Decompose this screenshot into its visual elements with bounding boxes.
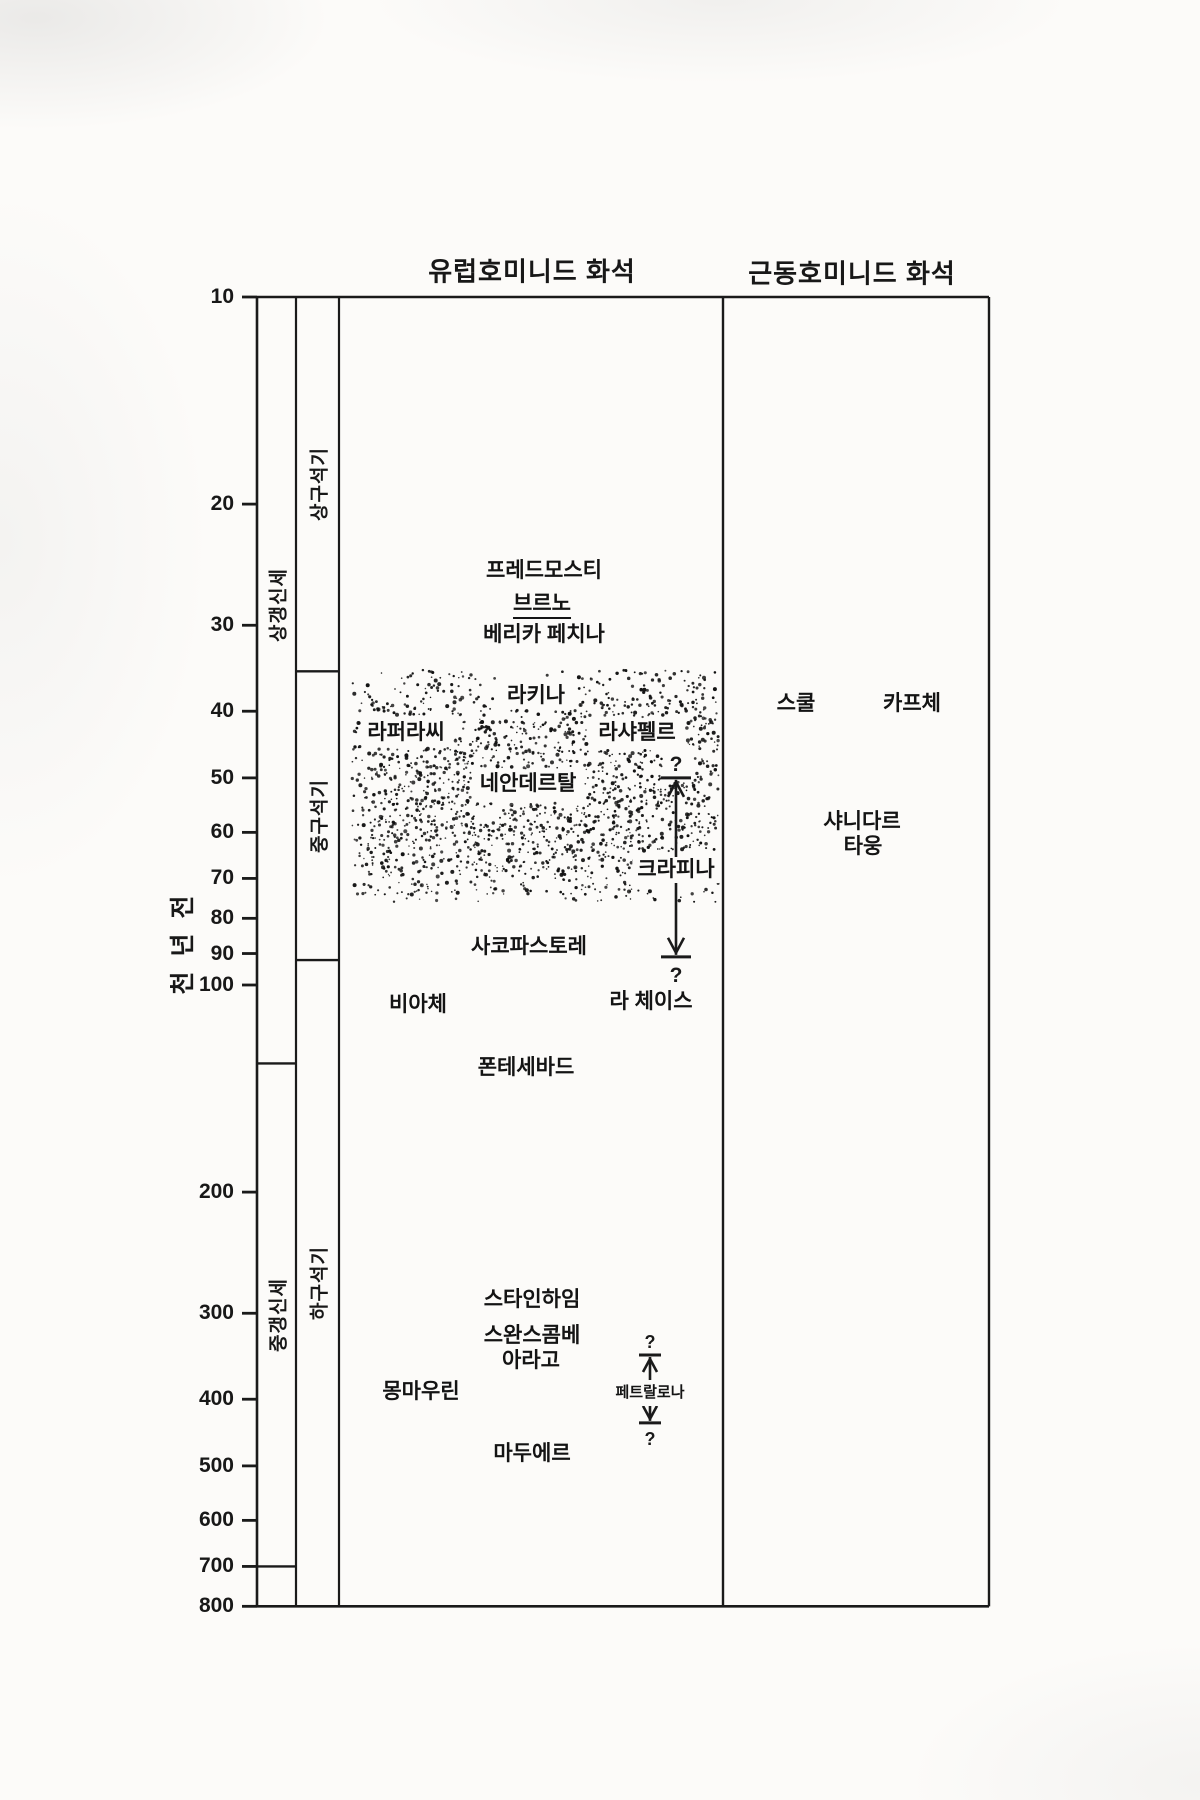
stipple-dot bbox=[438, 788, 442, 792]
stipple-dot bbox=[483, 850, 486, 853]
stipple-dot bbox=[518, 848, 521, 851]
stipple-dot bbox=[488, 829, 491, 832]
stipple-dot bbox=[699, 674, 701, 676]
stipple-dot bbox=[476, 737, 479, 740]
stipple-dot bbox=[514, 744, 515, 745]
stipple-dot bbox=[620, 857, 622, 859]
stipple-dot bbox=[431, 676, 433, 678]
stipple-dot bbox=[653, 787, 655, 789]
stipple-dot bbox=[692, 743, 694, 745]
europe-panel-title: 유럽호미니드 화석 bbox=[428, 252, 636, 289]
stipple-dot bbox=[413, 842, 415, 844]
stipple-dot bbox=[469, 796, 472, 799]
stipple-dot bbox=[502, 870, 504, 872]
stipple-dot bbox=[488, 834, 491, 837]
stipple-dot bbox=[611, 697, 614, 700]
stipple-dot bbox=[704, 835, 706, 837]
stipple-dot bbox=[592, 776, 595, 779]
stipple-dot bbox=[514, 817, 517, 820]
stipple-dot bbox=[456, 882, 459, 885]
stipple-dot bbox=[612, 821, 616, 825]
stipple-dot bbox=[448, 802, 450, 804]
stipple-dot bbox=[701, 799, 704, 802]
stipple-dot bbox=[585, 815, 588, 818]
stipple-dot bbox=[580, 838, 584, 842]
stipple-dot bbox=[480, 824, 483, 827]
stipple-dot bbox=[658, 775, 660, 777]
stipple-dot bbox=[594, 815, 597, 818]
stipple-dot bbox=[665, 807, 667, 809]
stipple-dot bbox=[576, 808, 578, 810]
stipple-dot bbox=[380, 834, 383, 837]
stipple-dot bbox=[450, 690, 454, 694]
stipple-dot bbox=[486, 825, 489, 828]
stipple-dot bbox=[714, 827, 717, 830]
stipple-dot bbox=[624, 836, 627, 839]
stipple-dot bbox=[379, 843, 382, 846]
stipple-dot bbox=[591, 849, 594, 852]
stipple-dot bbox=[520, 831, 523, 834]
stipple-dot bbox=[454, 889, 456, 891]
stipple-dot bbox=[398, 882, 399, 883]
stipple-dot bbox=[383, 755, 386, 758]
stipple-dot bbox=[645, 803, 647, 805]
stipple-dot bbox=[691, 892, 694, 895]
stipple-dot bbox=[468, 761, 470, 763]
stipple-dot bbox=[638, 833, 641, 836]
stipple-dot bbox=[435, 899, 438, 902]
stipple-dot bbox=[417, 806, 419, 808]
stipple-dot bbox=[529, 805, 532, 808]
stipple-dot bbox=[400, 691, 402, 693]
stipple-dot bbox=[540, 753, 541, 754]
stipple-dot bbox=[644, 749, 647, 752]
stipple-dot bbox=[598, 859, 599, 860]
stipple-dot bbox=[608, 697, 610, 699]
stipple-dot bbox=[699, 820, 701, 822]
stipple-dot bbox=[638, 704, 641, 707]
stipple-dot bbox=[473, 832, 475, 834]
stipple-dot bbox=[384, 893, 386, 895]
stipple-dot bbox=[657, 801, 659, 803]
stipple-dot bbox=[352, 692, 356, 696]
stipple-dot bbox=[456, 698, 457, 699]
stipple-dot bbox=[531, 762, 534, 765]
stipple-dot bbox=[694, 824, 696, 826]
stipple-dot bbox=[640, 672, 642, 674]
stipple-dot bbox=[713, 823, 716, 826]
stipple-dot bbox=[669, 784, 672, 787]
stipple-dot bbox=[477, 852, 480, 855]
stipple-dot bbox=[562, 827, 564, 829]
stipple-dot bbox=[374, 837, 376, 839]
stipple-dot bbox=[680, 896, 682, 898]
stipple-dot bbox=[412, 878, 415, 881]
stipple-dot bbox=[698, 813, 700, 815]
stipple-dot bbox=[415, 826, 418, 829]
stipple-dot bbox=[605, 844, 608, 847]
stipple-dot bbox=[587, 796, 590, 799]
stipple-dot bbox=[406, 704, 409, 707]
stipple-dot bbox=[427, 886, 429, 888]
stipple-dot bbox=[568, 732, 572, 736]
y-axis-tick-label: 600 bbox=[150, 1508, 234, 1532]
y-axis-tick-label: 300 bbox=[150, 1301, 234, 1325]
stipple-dot bbox=[437, 800, 441, 804]
stipple-dot bbox=[641, 840, 644, 843]
stipple-dot bbox=[352, 825, 354, 827]
stipple-dot bbox=[695, 699, 697, 701]
stipple-dot bbox=[523, 834, 525, 836]
stipple-dot bbox=[434, 679, 438, 683]
stipple-dot bbox=[706, 765, 710, 769]
stipple-dot bbox=[557, 725, 560, 728]
stipple-dot bbox=[650, 775, 653, 778]
stipple-dot bbox=[678, 829, 681, 832]
stipple-dot bbox=[427, 815, 430, 818]
stipple-dot bbox=[556, 767, 558, 769]
stipple-dot bbox=[629, 884, 631, 886]
stipple-dot bbox=[381, 865, 385, 869]
stipple-dot bbox=[384, 769, 387, 772]
stipple-dot bbox=[420, 799, 424, 803]
stipple-dot bbox=[462, 759, 465, 762]
stipple-dot bbox=[457, 751, 459, 753]
stipple-dot bbox=[622, 858, 626, 862]
stipple-dot bbox=[491, 748, 493, 750]
stipple-dot bbox=[638, 847, 640, 849]
stipple-dot bbox=[387, 709, 390, 712]
stipple-dot bbox=[598, 765, 600, 767]
stipple-dot bbox=[433, 819, 436, 822]
stipple-dot bbox=[541, 826, 545, 830]
stipple-dot bbox=[465, 866, 467, 868]
stipple-dot bbox=[578, 687, 581, 690]
stipple-dot bbox=[587, 750, 589, 752]
stipple-dot bbox=[397, 838, 401, 842]
stipple-dot bbox=[401, 852, 405, 856]
stipple-dot bbox=[520, 745, 523, 748]
stipple-dot bbox=[353, 794, 356, 797]
stipple-dot bbox=[606, 704, 609, 707]
stipple-dot bbox=[689, 744, 690, 745]
stipple-dot bbox=[519, 865, 522, 868]
stipple-dot bbox=[570, 828, 573, 831]
stipple-dot bbox=[571, 868, 573, 870]
stipple-dot bbox=[636, 698, 639, 701]
stipple-dot bbox=[602, 853, 604, 855]
stipple-dot bbox=[366, 847, 369, 850]
stipple-dot bbox=[616, 846, 619, 849]
stipple-dot bbox=[427, 820, 430, 823]
y-axis-tick-label: 10 bbox=[150, 285, 234, 309]
stipple-dot bbox=[581, 889, 583, 891]
stipple-dot bbox=[588, 690, 590, 692]
stipple-dot bbox=[646, 821, 648, 823]
stipple-dot bbox=[382, 852, 385, 855]
stipple-dot bbox=[545, 736, 548, 739]
stipple-dot bbox=[521, 721, 524, 724]
stipple-dot bbox=[690, 825, 692, 827]
stipple-dot bbox=[433, 748, 436, 751]
stipple-dot bbox=[588, 714, 591, 717]
stipple-dot bbox=[680, 847, 684, 851]
stipple-dot bbox=[628, 828, 630, 830]
stipple-dot bbox=[384, 793, 387, 796]
y-axis-tick-label: 500 bbox=[150, 1454, 234, 1478]
stipple-dot bbox=[619, 789, 623, 793]
stipple-dot bbox=[707, 827, 709, 829]
stipple-dot bbox=[522, 843, 525, 846]
stipple-dot bbox=[419, 810, 421, 812]
stipple-dot bbox=[512, 721, 514, 723]
stipple-dot bbox=[428, 708, 430, 710]
stipple-dot bbox=[359, 852, 361, 854]
stipple-dot bbox=[558, 834, 562, 838]
stipple-dot bbox=[651, 840, 654, 843]
stipple-dot bbox=[420, 755, 423, 758]
stipple-dot bbox=[539, 831, 541, 833]
stipple-dot bbox=[454, 834, 457, 837]
stipple-dot bbox=[580, 749, 582, 751]
stipple-dot bbox=[687, 813, 691, 817]
stipple-dot bbox=[611, 856, 614, 859]
stipple-dot bbox=[394, 775, 397, 778]
stipple-dot bbox=[694, 779, 697, 782]
stipple-dot bbox=[687, 702, 689, 704]
stipple-dot bbox=[556, 837, 558, 839]
stipple-dot bbox=[424, 797, 427, 800]
stipple-dot bbox=[371, 704, 374, 707]
stipple-dot bbox=[485, 729, 488, 732]
stipple-dot bbox=[669, 703, 671, 705]
stipple-dot bbox=[712, 816, 715, 819]
stipple-dot bbox=[364, 787, 367, 790]
stipple-dot bbox=[417, 889, 419, 891]
column-label: 상갱신세 bbox=[263, 568, 290, 642]
stipple-dot bbox=[496, 870, 498, 872]
stipple-dot bbox=[522, 733, 524, 735]
stipple-dot bbox=[600, 811, 602, 813]
stipple-dot bbox=[598, 770, 600, 772]
stipple-dot bbox=[708, 782, 712, 786]
stipple-dot bbox=[454, 774, 456, 776]
stipple-dot bbox=[396, 803, 399, 806]
stipple-dot bbox=[554, 747, 556, 749]
stipple-dot bbox=[688, 685, 690, 687]
stipple-dot bbox=[467, 855, 469, 857]
column-label: 상구석기 bbox=[304, 447, 331, 521]
stipple-dot bbox=[437, 682, 441, 686]
stipple-dot bbox=[436, 844, 438, 846]
fossil-site-label: 타웅 bbox=[844, 834, 883, 860]
near-east-panel-title: 근동호미니드 화석 bbox=[748, 254, 956, 291]
stipple-dot bbox=[602, 684, 604, 686]
stipple-dot bbox=[606, 773, 608, 775]
stipple-dot bbox=[646, 800, 648, 802]
stipple-dot bbox=[467, 838, 469, 840]
stipple-dot bbox=[382, 877, 384, 879]
stipple-dot bbox=[679, 819, 683, 823]
stipple-dot bbox=[631, 751, 635, 755]
stipple-dot bbox=[715, 764, 718, 767]
stipple-dot bbox=[357, 721, 361, 725]
column-label: 중구석기 bbox=[304, 779, 331, 853]
stipple-dot bbox=[587, 805, 589, 807]
stipple-dot bbox=[686, 816, 689, 819]
stipple-dot bbox=[584, 824, 587, 827]
stipple-dot bbox=[412, 841, 414, 843]
stipple-dot bbox=[701, 697, 704, 700]
stipple-dot bbox=[373, 825, 375, 827]
stipple-dot bbox=[712, 696, 715, 699]
stipple-dot bbox=[414, 819, 417, 822]
stipple-dot bbox=[522, 752, 525, 755]
stipple-dot bbox=[714, 671, 717, 674]
stipple-dot bbox=[426, 805, 428, 807]
stipple-dot bbox=[380, 802, 382, 804]
stipple-dot bbox=[419, 847, 423, 851]
stipple-dot bbox=[419, 898, 420, 899]
y-axis-tick-label: 100 bbox=[150, 973, 234, 997]
stipple-dot bbox=[513, 810, 517, 814]
stipple-dot bbox=[691, 701, 695, 705]
stipple-dot bbox=[690, 803, 693, 806]
stipple-dot bbox=[608, 707, 611, 710]
stipple-dot bbox=[702, 762, 704, 764]
stipple-dot bbox=[661, 818, 664, 821]
stipple-dot bbox=[701, 693, 704, 696]
stipple-dot bbox=[417, 880, 420, 883]
stipple-dot bbox=[709, 822, 711, 824]
stipple-dot bbox=[608, 678, 611, 681]
stipple-dot bbox=[544, 765, 547, 768]
stipple-dot bbox=[561, 761, 563, 763]
stipple-dot bbox=[480, 849, 483, 852]
stipple-dot bbox=[517, 726, 519, 728]
stipple-dot bbox=[627, 851, 629, 853]
stipple-dot bbox=[693, 901, 695, 903]
stipple-dot bbox=[429, 805, 432, 808]
stipple-dot bbox=[660, 758, 663, 761]
stipple-dot bbox=[681, 784, 684, 787]
stipple-dot bbox=[557, 742, 559, 744]
stipple-dot bbox=[409, 822, 411, 824]
stipple-dot bbox=[480, 765, 482, 767]
stipple-dot bbox=[497, 828, 500, 831]
stipple-dot bbox=[450, 683, 453, 686]
stipple-dot bbox=[476, 740, 478, 742]
stipple-dot bbox=[603, 814, 605, 816]
stipple-dot bbox=[391, 758, 394, 761]
stipple-dot bbox=[698, 761, 702, 765]
stipple-dot bbox=[371, 778, 373, 780]
stipple-dot bbox=[508, 813, 510, 815]
stipple-dot bbox=[388, 850, 391, 853]
stipple-dot bbox=[396, 798, 398, 800]
stipple-dot bbox=[453, 789, 455, 791]
stipple-dot bbox=[489, 876, 491, 878]
stipple-dot bbox=[562, 893, 564, 895]
stipple-dot bbox=[612, 775, 614, 777]
stipple-dot bbox=[576, 848, 579, 851]
stipple-dot bbox=[633, 711, 637, 715]
stipple-dot bbox=[588, 793, 591, 796]
stipple-dot bbox=[643, 684, 645, 686]
stipple-dot bbox=[578, 732, 581, 735]
stipple-dot bbox=[443, 771, 446, 774]
stipple-dot bbox=[546, 674, 549, 677]
y-axis-tick-label: 20 bbox=[150, 492, 234, 516]
stipple-dot bbox=[602, 762, 605, 765]
stipple-dot bbox=[466, 763, 468, 765]
stipple-dot bbox=[602, 833, 605, 836]
stipple-dot bbox=[472, 741, 474, 743]
stipple-dot bbox=[686, 689, 688, 691]
stipple-dot bbox=[470, 821, 472, 823]
stipple-dot bbox=[499, 723, 501, 725]
stipple-dot bbox=[379, 839, 381, 841]
stipple-dot bbox=[548, 841, 551, 844]
stipple-dot bbox=[600, 899, 602, 901]
stipple-dot bbox=[652, 815, 654, 817]
stipple-dot bbox=[615, 760, 617, 762]
stipple-dot bbox=[566, 723, 569, 726]
stipple-dot bbox=[361, 892, 364, 895]
stipple-dot bbox=[534, 808, 537, 811]
stipple-dot bbox=[456, 865, 458, 867]
stipple-dot bbox=[491, 697, 494, 700]
stipple-dot bbox=[653, 796, 657, 800]
stipple-dot bbox=[419, 828, 422, 831]
stipple-dot bbox=[668, 850, 670, 852]
stipple-dot bbox=[395, 859, 398, 862]
stipple-dot bbox=[700, 776, 702, 778]
stipple-dot bbox=[548, 845, 550, 847]
stipple-dot bbox=[362, 823, 366, 827]
stipple-dot bbox=[638, 766, 641, 769]
stipple-dot bbox=[685, 726, 689, 730]
stipple-dot bbox=[630, 841, 632, 843]
stipple-dot bbox=[451, 781, 453, 783]
stipple-dot bbox=[358, 836, 361, 839]
stipple-dot bbox=[466, 786, 470, 790]
stipple-dot bbox=[703, 706, 706, 709]
stipple-dot bbox=[618, 860, 621, 863]
stipple-dot bbox=[355, 757, 357, 759]
stipple-dot bbox=[709, 773, 712, 776]
stipple-dot bbox=[413, 707, 416, 710]
stipple-dot bbox=[696, 703, 698, 705]
stipple-dot bbox=[403, 682, 405, 684]
stipple-dot bbox=[386, 772, 388, 774]
stipple-dot bbox=[587, 876, 589, 878]
stipple-dot bbox=[561, 853, 563, 855]
stipple-dot bbox=[439, 677, 441, 679]
stipple-dot bbox=[445, 881, 449, 885]
stipple-dot bbox=[650, 750, 651, 751]
stipple-dot bbox=[641, 847, 644, 850]
stipple-dot bbox=[458, 815, 460, 817]
stipple-dot bbox=[502, 865, 504, 867]
stipple-dot bbox=[496, 837, 499, 840]
stipple-dot bbox=[457, 712, 459, 714]
stipple-dot bbox=[550, 814, 551, 815]
stipple-dot bbox=[557, 816, 560, 819]
stipple-dot bbox=[714, 719, 716, 721]
stipple-dot bbox=[358, 783, 362, 787]
stipple-dot bbox=[394, 789, 397, 792]
